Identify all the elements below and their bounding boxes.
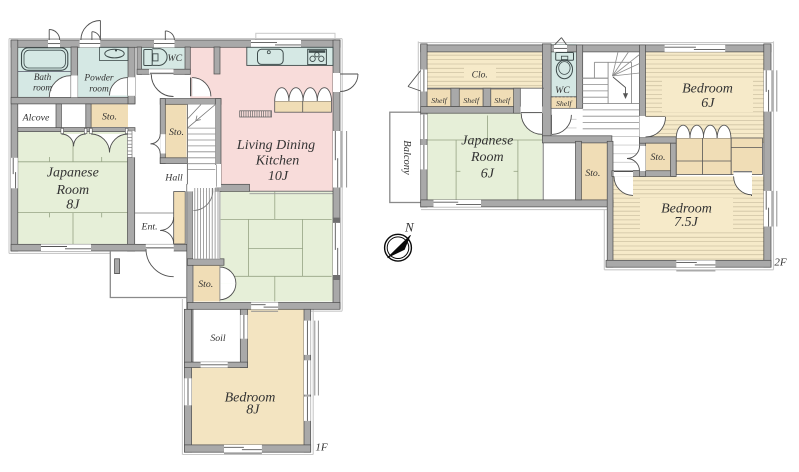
svg-text:Shelf: Shelf xyxy=(463,96,480,105)
svg-text:Japanese: Japanese xyxy=(47,165,99,180)
svg-text:Shelf: Shelf xyxy=(431,96,448,105)
svg-text:Sto.: Sto. xyxy=(585,168,600,179)
svg-text:2F: 2F xyxy=(774,256,787,268)
svg-text:Sto.: Sto. xyxy=(102,111,117,122)
svg-text:Alcove: Alcove xyxy=(22,113,50,124)
svg-text:Sto.: Sto. xyxy=(169,127,184,138)
svg-text:Bedroom: Bedroom xyxy=(682,82,733,97)
svg-text:Soil: Soil xyxy=(210,333,226,344)
svg-text:7.5J: 7.5J xyxy=(674,215,699,230)
svg-text:Shelf: Shelf xyxy=(556,99,573,108)
svg-text:Hall: Hall xyxy=(164,173,183,184)
svg-text:8J: 8J xyxy=(246,403,260,418)
svg-text:6J: 6J xyxy=(701,96,715,111)
svg-text:Powder: Powder xyxy=(83,74,114,84)
svg-text:1F: 1F xyxy=(315,442,328,454)
svg-text:Sto.: Sto. xyxy=(651,152,666,163)
svg-text:6J: 6J xyxy=(481,167,495,182)
svg-text:Clo.: Clo. xyxy=(472,69,488,80)
svg-text:room: room xyxy=(89,84,109,94)
svg-text:Ent.: Ent. xyxy=(140,221,157,232)
svg-text:Room: Room xyxy=(470,150,504,165)
svg-text:Japanese: Japanese xyxy=(461,134,513,149)
svg-text:Shelf: Shelf xyxy=(494,96,511,105)
svg-text:WC: WC xyxy=(555,85,570,96)
svg-text:N: N xyxy=(404,220,415,235)
svg-text:Living Dining: Living Dining xyxy=(236,138,315,153)
svg-text:Sto.: Sto. xyxy=(198,279,213,290)
svg-text:10J: 10J xyxy=(268,169,289,184)
svg-text:Bath: Bath xyxy=(34,72,52,82)
svg-text:WC: WC xyxy=(167,53,182,64)
svg-text:Balcony: Balcony xyxy=(401,140,412,175)
svg-text:room: room xyxy=(33,83,52,93)
svg-text:8J: 8J xyxy=(66,197,80,212)
svg-text:Kitchen: Kitchen xyxy=(255,153,300,168)
svg-text:Room: Room xyxy=(55,183,89,198)
